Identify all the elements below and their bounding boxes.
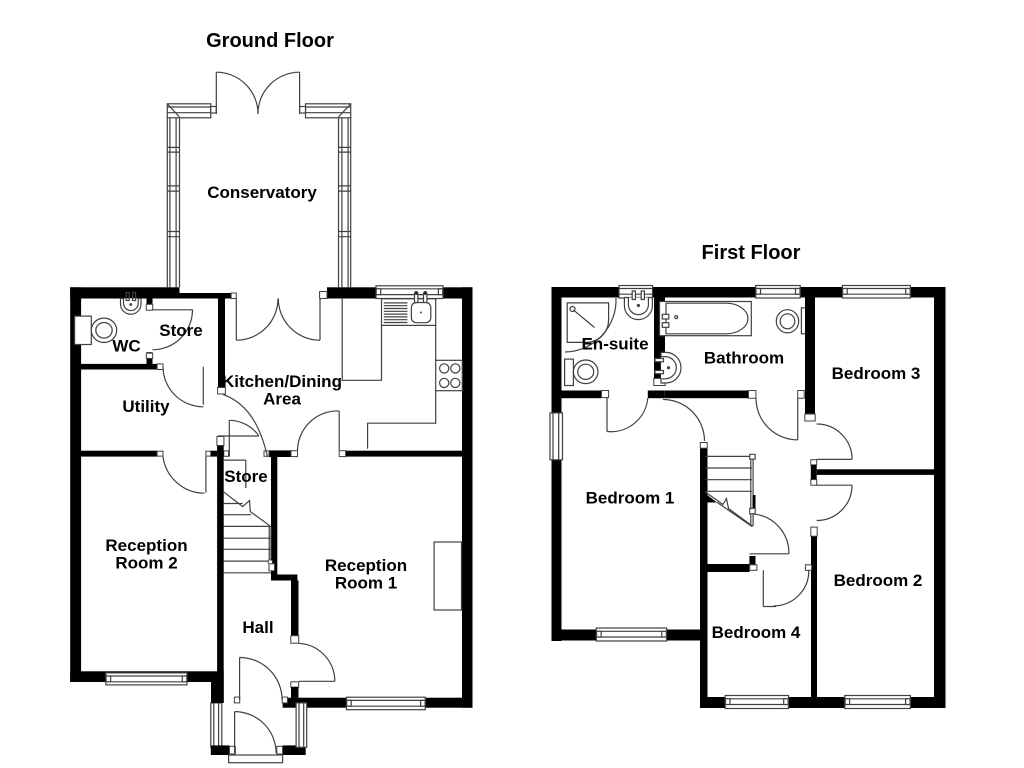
svg-text:Area: Area (263, 390, 301, 409)
svg-text:Store: Store (159, 321, 202, 340)
svg-text:Bedroom 2: Bedroom 2 (834, 571, 923, 590)
svg-text:Room 1: Room 1 (335, 574, 397, 593)
svg-text:Reception: Reception (325, 556, 407, 575)
svg-text:Utility: Utility (122, 397, 170, 416)
svg-text:Bathroom: Bathroom (704, 349, 784, 368)
svg-text:Hall: Hall (242, 618, 273, 637)
svg-text:Store: Store (224, 467, 267, 486)
svg-text:Reception: Reception (105, 536, 187, 555)
svg-text:Conservatory: Conservatory (207, 183, 317, 202)
svg-text:Bedroom 4: Bedroom 4 (712, 623, 801, 642)
svg-text:First Floor: First Floor (702, 242, 801, 264)
svg-text:Ground Floor: Ground Floor (206, 30, 334, 52)
svg-text:Bedroom 1: Bedroom 1 (586, 489, 675, 508)
svg-text:En-suite: En-suite (581, 335, 648, 354)
svg-text:Bedroom 3: Bedroom 3 (832, 364, 921, 383)
svg-text:WC: WC (112, 337, 140, 356)
svg-text:Kitchen/Dining: Kitchen/Dining (222, 372, 342, 391)
svg-text:Room 2: Room 2 (115, 554, 177, 573)
